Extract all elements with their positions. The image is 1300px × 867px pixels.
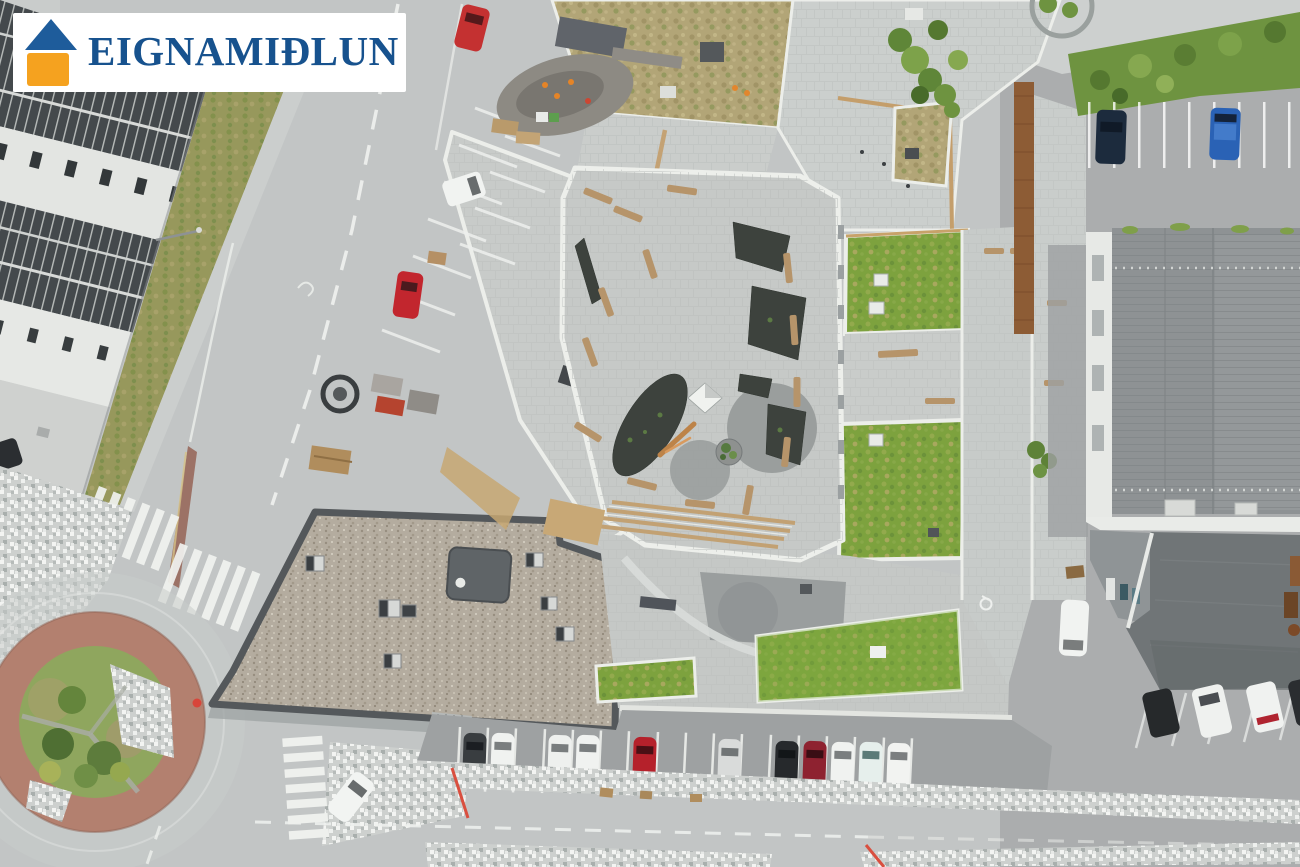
- aerial-photo: EIGNAMIÐLUN: [0, 0, 1300, 867]
- worker: [744, 90, 750, 96]
- house-body-icon: [27, 53, 69, 86]
- worker: [568, 79, 574, 85]
- worker: [732, 85, 738, 91]
- roof-triangle-icon: [25, 19, 77, 50]
- car: [1095, 109, 1127, 164]
- brand-name: EIGNAMIÐLUN: [88, 31, 399, 74]
- worker: [542, 82, 548, 88]
- van: [1059, 599, 1090, 656]
- worker: [554, 93, 560, 99]
- aerial-scene: [0, 0, 1300, 867]
- roof-hatch: [446, 547, 511, 603]
- red-marker-ball: [193, 699, 202, 708]
- brand-watermark: EIGNAMIÐLUN: [13, 13, 406, 92]
- house-logo-icon: [25, 19, 77, 86]
- car: [1209, 107, 1241, 160]
